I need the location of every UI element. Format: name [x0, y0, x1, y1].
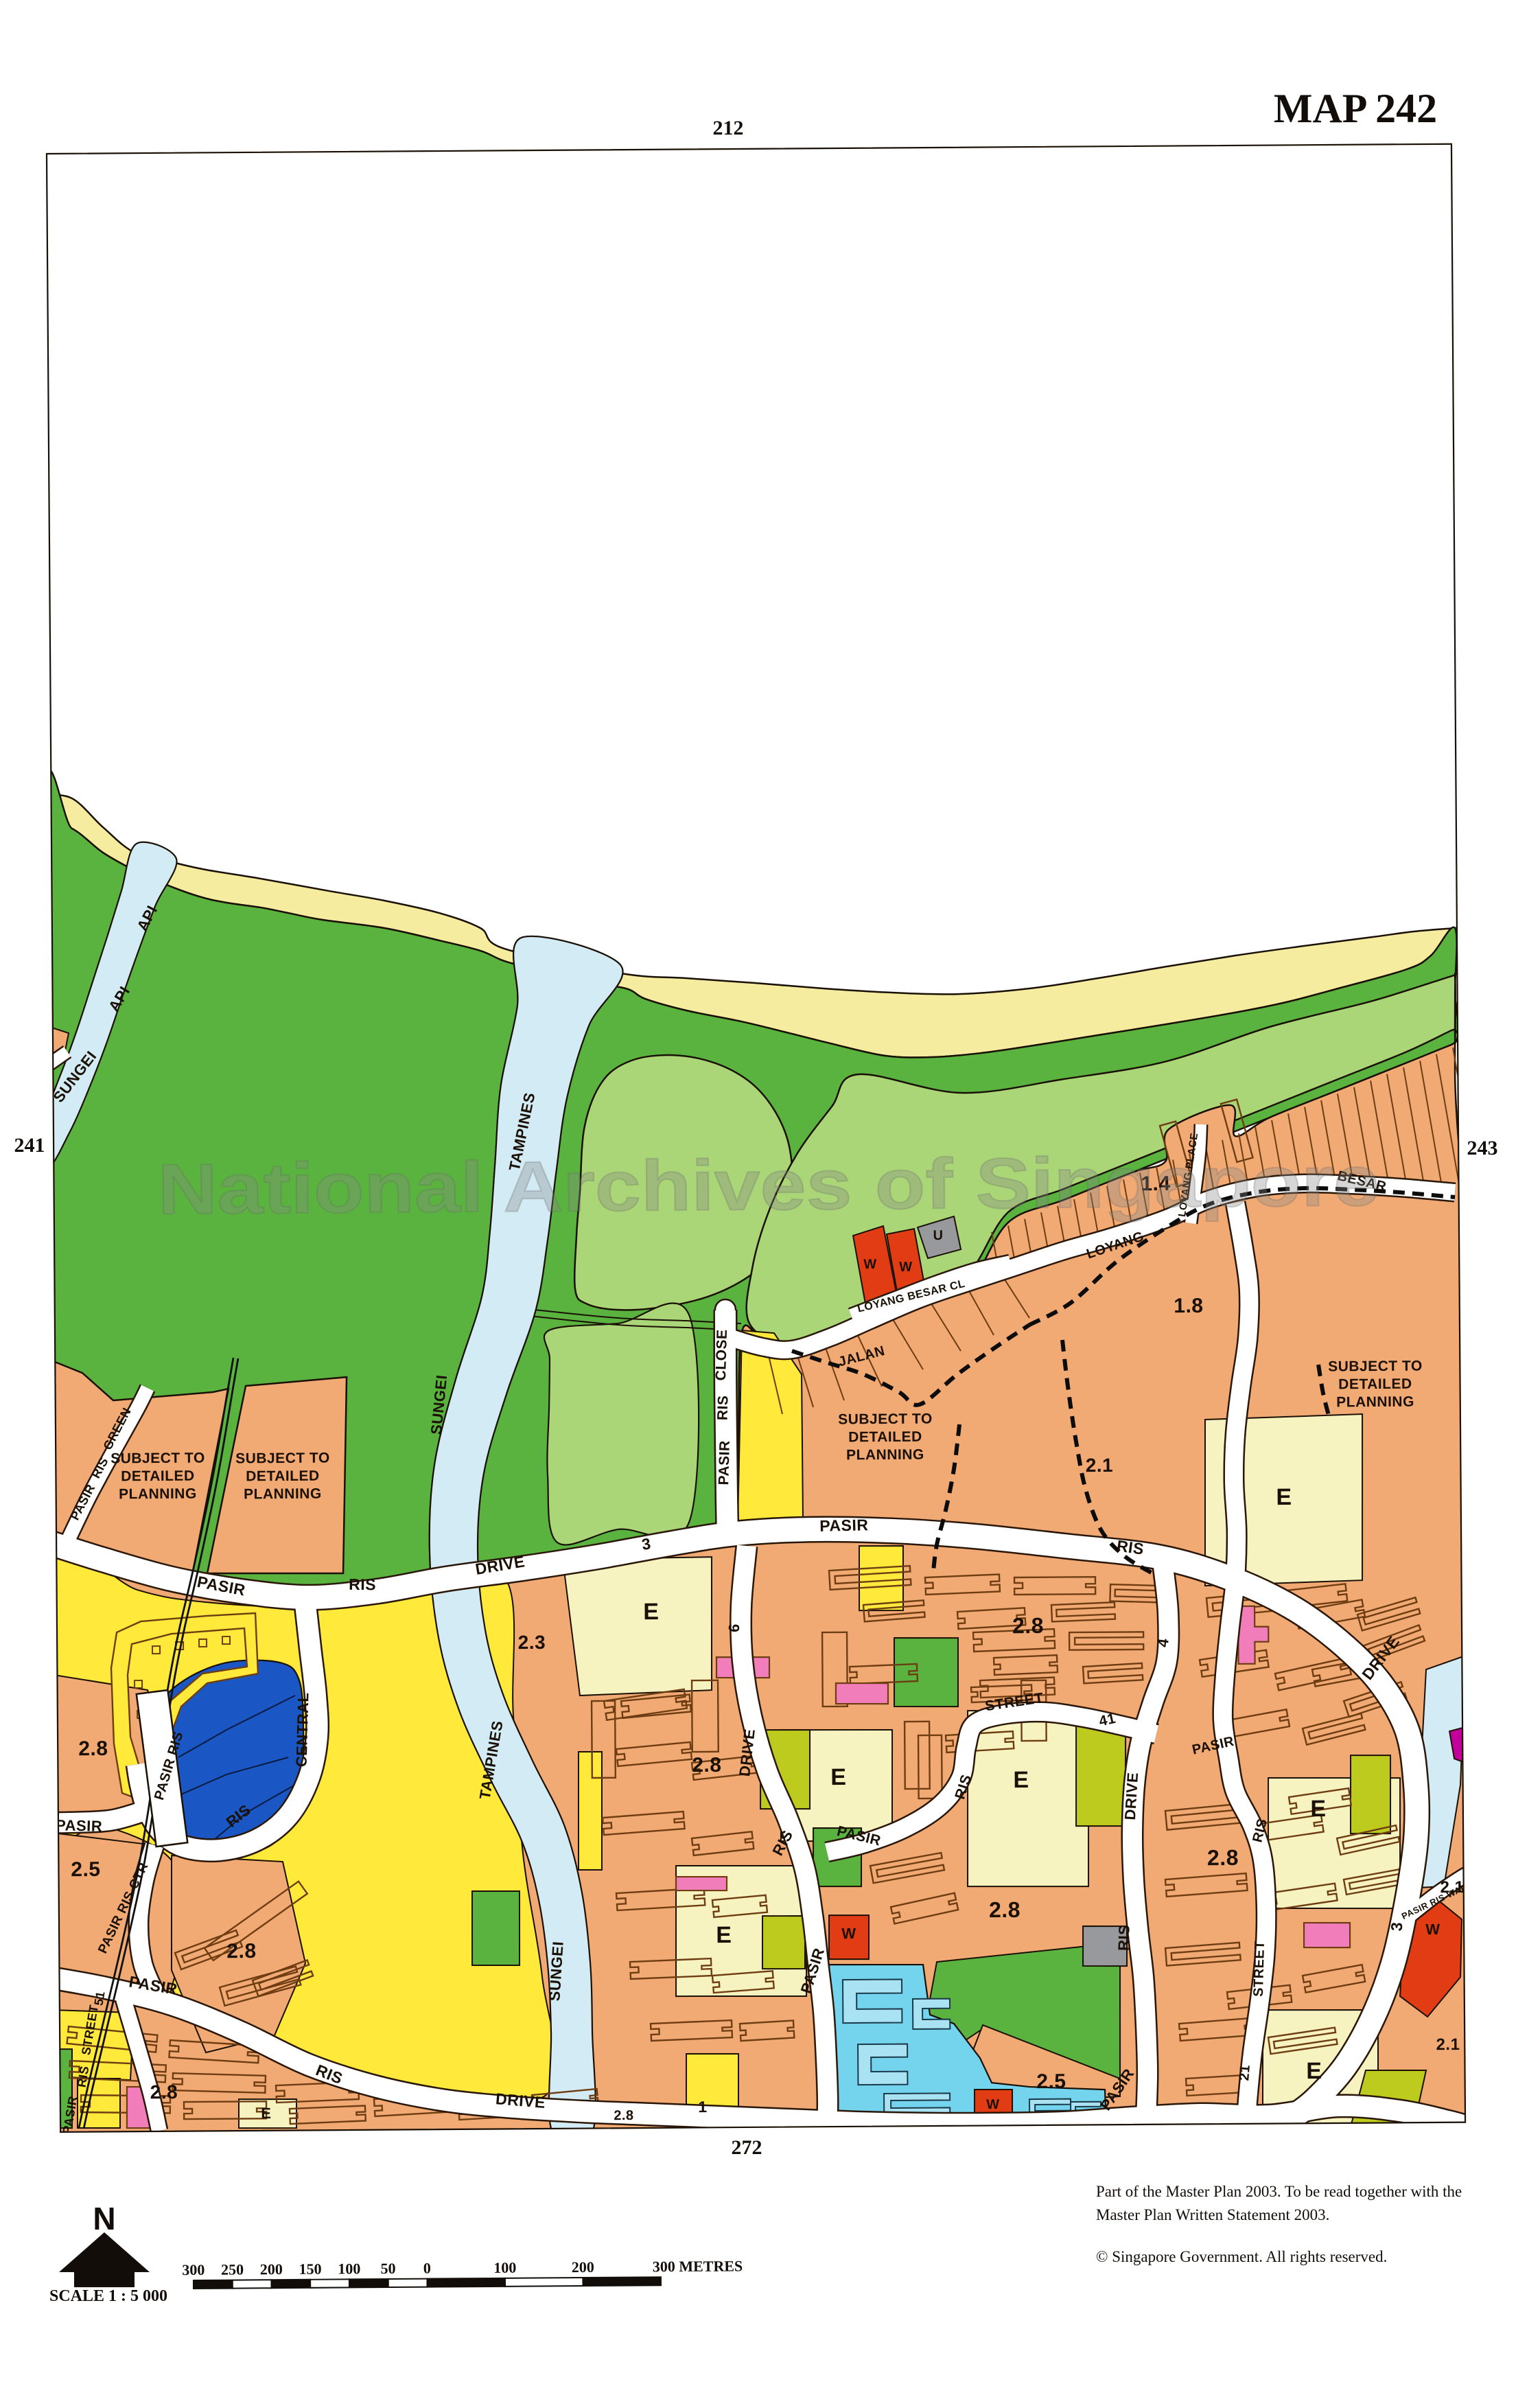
svg-text:W: W [1425, 1921, 1440, 1938]
svg-text:CLOSE: CLOSE [713, 1329, 730, 1380]
svg-text:W: W [986, 2097, 1000, 2112]
svg-text:MAP 242: MAP 242 [1274, 86, 1437, 131]
svg-text:51: 51 [91, 1990, 107, 2006]
svg-text:PLANNING: PLANNING [846, 1447, 924, 1463]
svg-text:PASIR: PASIR [716, 1440, 733, 1485]
svg-text:E: E [716, 1922, 732, 1948]
svg-text:2.8: 2.8 [226, 1940, 256, 1963]
svg-text:1: 1 [698, 2098, 707, 2116]
svg-text:DETAILED: DETAILED [1338, 1376, 1412, 1393]
svg-text:STREET: STREET [1251, 1941, 1268, 1997]
svg-text:SUBJECT TO: SUBJECT TO [110, 1450, 205, 1467]
svg-text:150: 150 [299, 2260, 321, 2278]
svg-text:PLANNING: PLANNING [119, 1486, 197, 1503]
svg-text:200: 200 [260, 2260, 283, 2278]
svg-text:E: E [643, 1599, 659, 1625]
svg-text:241: 241 [14, 1134, 45, 1157]
svg-text:212: 212 [713, 117, 744, 139]
svg-text:PLANNING: PLANNING [1336, 1394, 1414, 1411]
svg-text:W: W [899, 1260, 913, 1275]
svg-text:SUBJECT TO: SUBJECT TO [838, 1411, 933, 1428]
svg-text:CENTRAL: CENTRAL [293, 1692, 312, 1767]
svg-text:W: W [841, 1925, 856, 1942]
svg-text:E: E [830, 1764, 846, 1790]
svg-text:6: 6 [725, 1623, 743, 1633]
svg-text:0: 0 [423, 2260, 431, 2277]
svg-text:E: E [1013, 1767, 1029, 1793]
svg-text:National Archives of Singapore: National Archives of Singapore [157, 1142, 1379, 1229]
svg-text:E: E [261, 2105, 271, 2122]
svg-text:21: 21 [1237, 2064, 1253, 2081]
svg-text:E: E [1310, 1796, 1326, 1822]
svg-text:2.8: 2.8 [989, 1897, 1020, 1922]
svg-text:243: 243 [1467, 1137, 1498, 1159]
svg-text:E: E [1276, 1484, 1292, 1510]
svg-text:2.8: 2.8 [1207, 1845, 1239, 1870]
svg-text:SUBJECT TO: SUBJECT TO [235, 1450, 330, 1467]
svg-text:2.8: 2.8 [78, 1737, 108, 1760]
svg-text:W: W [863, 1257, 877, 1272]
svg-text:272: 272 [732, 2136, 762, 2159]
svg-text:PASIR: PASIR [56, 1816, 103, 1835]
svg-text:100: 100 [493, 2259, 516, 2276]
svg-text:300 METRES: 300 METRES [653, 2257, 743, 2275]
svg-text:DETAILED: DETAILED [246, 1468, 320, 1485]
svg-text:U: U [933, 1228, 943, 1243]
svg-text:200: 200 [572, 2258, 594, 2276]
svg-text:RIS: RIS [714, 1395, 731, 1420]
svg-text:250: 250 [221, 2260, 244, 2278]
svg-text:2.1: 2.1 [1436, 2035, 1460, 2054]
svg-text:2.8: 2.8 [692, 1754, 721, 1777]
svg-text:2.5: 2.5 [71, 1858, 100, 1881]
svg-text:RIS: RIS [349, 1575, 376, 1593]
svg-text:3: 3 [1388, 1921, 1406, 1932]
svg-text:2.8: 2.8 [150, 2081, 178, 2103]
svg-text:2.1: 2.1 [1440, 1878, 1464, 1897]
svg-text:2.8: 2.8 [614, 2108, 633, 2123]
svg-text:E: E [1306, 2058, 1322, 2084]
svg-text:DETAILED: DETAILED [121, 1468, 195, 1485]
svg-text:2.8: 2.8 [1012, 1613, 1044, 1638]
svg-text:N: N [93, 2201, 115, 2236]
svg-text:PLANNING: PLANNING [244, 1486, 322, 1503]
svg-text:PASIR: PASIR [819, 1516, 869, 1535]
svg-text:DRIVE: DRIVE [1121, 1772, 1141, 1820]
svg-text:SUBJECT TO: SUBJECT TO [1328, 1358, 1423, 1375]
svg-text:1.8: 1.8 [1174, 1295, 1203, 1317]
svg-text:2.3: 2.3 [518, 1632, 546, 1653]
svg-text:SCALE 1 : 5 000: SCALE 1 : 5 000 [49, 2287, 167, 2305]
svg-text:Master Plan Written Statement: Master Plan Written Statement 2003. [1096, 2206, 1329, 2223]
svg-text:300: 300 [182, 2261, 205, 2278]
svg-text:2.1: 2.1 [1086, 1455, 1114, 1476]
svg-text:Part of the Master Plan 2003.: Part of the Master Plan 2003. To be read… [1096, 2183, 1462, 2200]
svg-text:DETAILED: DETAILED [848, 1429, 922, 1446]
svg-text:RIS: RIS [1115, 1924, 1133, 1951]
svg-text:RIS: RIS [1116, 1537, 1145, 1558]
svg-text:100: 100 [338, 2260, 360, 2277]
svg-text:© Singapore Government. All: © Singapore Government. All rights reser… [1096, 2248, 1387, 2265]
svg-text:50: 50 [381, 2260, 396, 2277]
svg-text:2.5: 2.5 [1036, 2070, 1066, 2093]
